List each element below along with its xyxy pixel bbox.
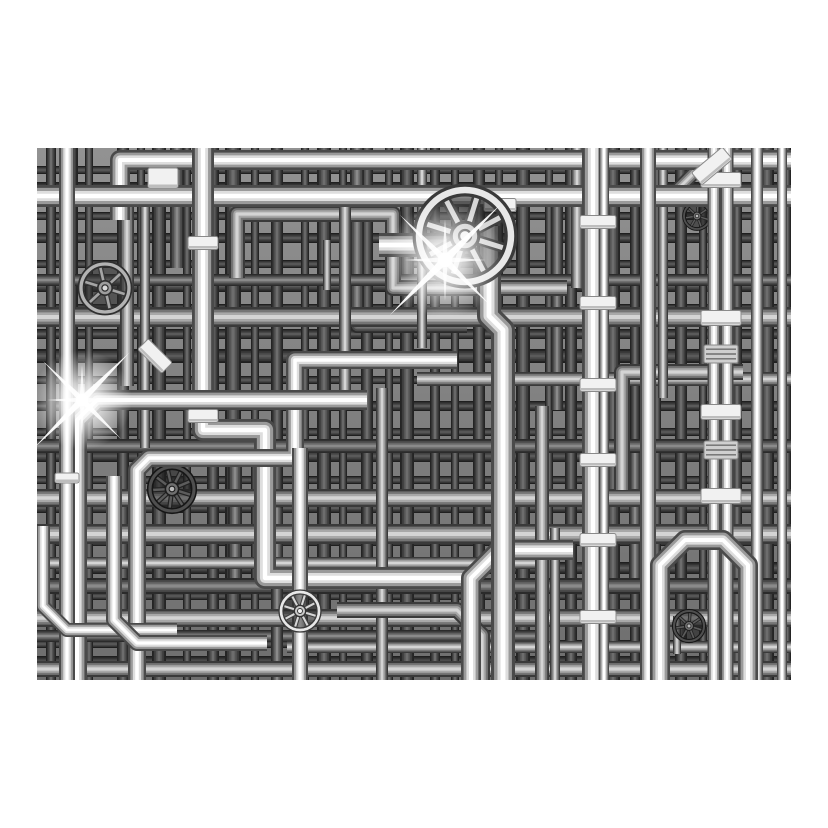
ribbed-coupling (704, 441, 738, 459)
clamp-band (701, 405, 741, 420)
clamp-band (580, 454, 616, 467)
page-background (0, 0, 828, 828)
clamp-band (188, 237, 218, 250)
clamp-band (55, 473, 79, 483)
clamp-band (580, 216, 616, 229)
ribbed-coupling (704, 345, 738, 363)
pipe-maze-scene (37, 148, 791, 680)
clamp-band (580, 379, 616, 392)
valve-handwheel (150, 467, 194, 511)
valve-handwheel (281, 592, 319, 630)
clamp-band (580, 297, 616, 310)
clamp-band (188, 410, 218, 423)
clamp-band (580, 611, 616, 624)
lens-flare (387, 202, 503, 318)
pipe-maze-photo (37, 148, 791, 680)
clamp-band (701, 311, 741, 326)
clamp-band (580, 534, 616, 547)
clamp-band (701, 489, 741, 504)
valve-handwheel (674, 611, 704, 641)
clamp-band (148, 168, 178, 188)
valve-handwheel (81, 264, 129, 312)
